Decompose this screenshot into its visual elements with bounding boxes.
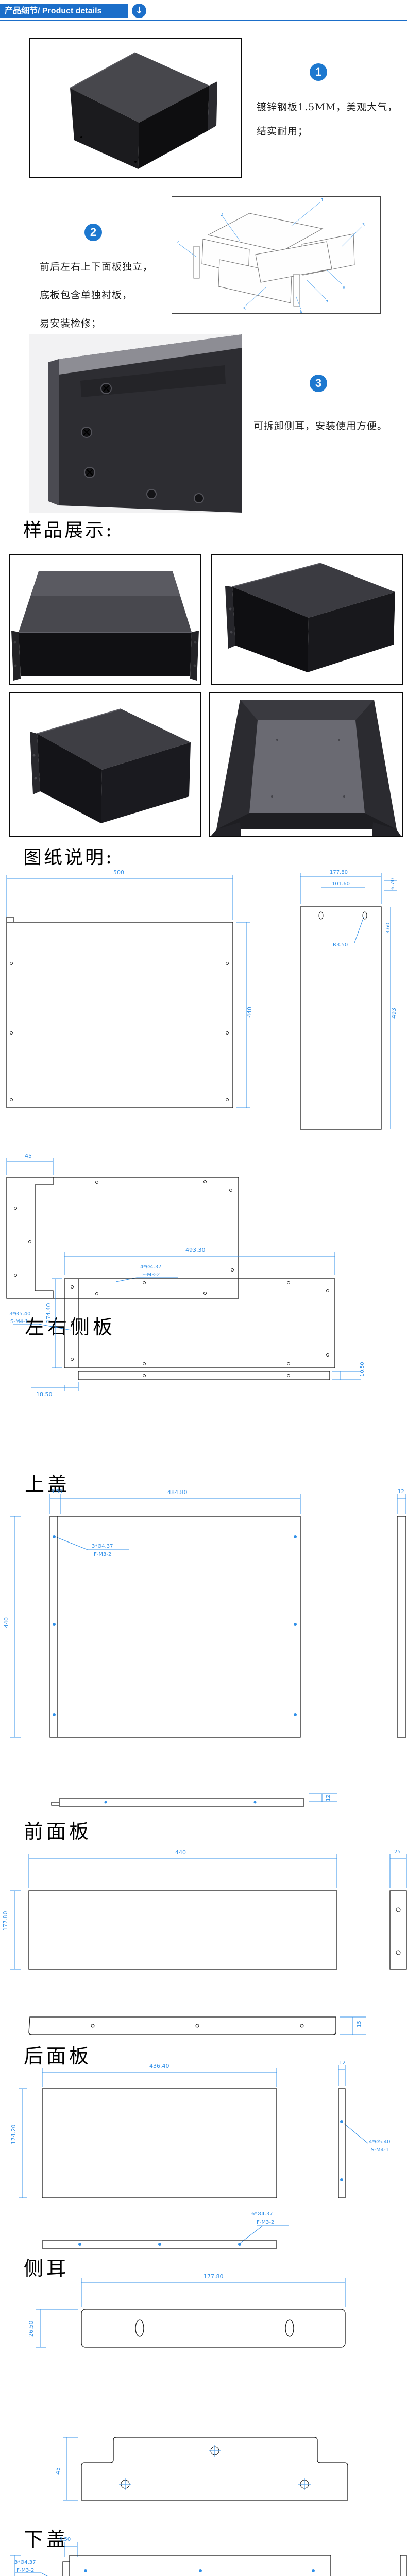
sample-photo-front-top [9,554,201,685]
dim-ear-profile-depth: 45 [55,2467,61,2475]
feature-3-line-1: 可拆卸侧耳，安装使用方便。 [253,418,387,432]
product-details-page: 产品细节/ Product details ↓ 1 镀锌钢板1.5MM，美观大气… [0,0,407,2576]
ann-rearpanel-side-holes-type: S-M4-1 [371,2147,389,2153]
callout-6: 6 [300,309,302,313]
callout-4: 4 [177,240,180,245]
header-rule [0,20,407,21]
dim-ear-hole-span: 101.60 [332,881,350,887]
dim-topcover-profile: 12 [326,1794,331,1801]
product-photo-1-art [30,39,241,177]
ann-topcover-holes-type: F-M3-2 [94,1552,111,1557]
dim-overall-width: 500 [113,869,124,876]
ann-bottomcover-corner-holes: 3*Ø4.37 [14,2559,36,2565]
ann-sidepanel-top-holes-type: F-M3-2 [142,1272,160,1278]
dim-overall-height: 440 [246,1007,253,1018]
dim-ear-width: 177.80 [330,870,348,875]
callout-3: 3 [362,223,365,227]
dim-topcover-width: 484.80 [167,1489,188,1496]
dim-bottomcover-inset: 9,50 [59,2537,71,2543]
exploded-view-diagram: 1 2 3 4 5 6 7 8 [172,196,381,314]
callout-5: 5 [243,307,246,311]
ann-sidepanel-side-holes: 3*Ø5.40 [9,1311,31,1317]
drawing-side-panel: 493.30 4*Ø4.37 F-M3-2 174.40 3*Ø5.40 S-M… [0,1247,407,1401]
down-arrow-icon: ↓ [132,4,146,18]
dim-side-flange: 45 [25,1153,32,1159]
dim-topcover-edge: 12 [398,1489,404,1495]
feature-2-line-2: 底板包含单独衬板， [40,287,132,301]
drawing-overall: 500 440 177.80 101.60 6.70 3.60 R3.50 49… [4,868,407,1133]
callout-7: 7 [326,300,328,304]
dim-frontpanel-side: 25 [394,1849,401,1855]
feature-1-badge: 1 [310,63,327,81]
callout-8: 8 [343,285,345,290]
product-photo-screw-closeup [29,334,242,513]
ann-sidepanel-side-holes-type: S-M4-1 [10,1319,28,1325]
dim-ear-height: 493 [391,1008,397,1019]
feature-2-line-3: 易安装检修； [40,316,101,330]
dim-rearpanel-width: 436.40 [149,2063,169,2070]
ann-sidepanel-top-holes: 4*Ø4.37 [140,1264,162,1270]
dim-frontpanel-channel: 15 [357,2021,362,2027]
dim-frontpanel-width: 440 [175,1849,186,1856]
dim-ear-length: 177.80 [203,2273,224,2280]
dim-frontpanel-height: 177.80 [2,1911,9,1931]
callout-2: 2 [221,212,223,217]
header-title-bar: 产品细节/ Product details [0,4,128,18]
feature-2-badge: 2 [84,224,102,241]
product-photo-angled-box [29,38,242,178]
dim-ear-radius: R3.50 [333,942,348,948]
drawing-top-cover: 9.50 484.80 12 440 3*Ø4.37 F-M3-2 12 [0,1488,407,1818]
feature-1-line-2: 结实耐用； [257,124,308,138]
sample-photo-interior [209,692,403,837]
drawing-side-ear: 177.80 26.50 45 [0,2271,407,2508]
sample-photo-angled-right [211,554,403,685]
drawing-front-panel: 440 25 177.80 15 [0,1847,407,2040]
callout-1: 1 [321,198,324,202]
ann-rearpanel-side-holes: 4*Ø5.40 [369,2139,391,2145]
feature-3-badge: 3 [310,375,327,392]
dim-sidepanel-height: 174.40 [45,1303,52,1324]
sample-photo-angled-left [9,692,201,837]
drawing-bottom-cover: 9,50 3*Ø4.37 F-M3-2 440 9*Ø5.40 BSO-3.5M… [0,2535,407,2576]
drawing-rear-panel: 436.40 12 174.20 4*Ø5.40 S-M4-1 6*Ø4.37 … [0,2060,407,2256]
feature-1-line-1: 镀锌钢板1.5MM，美观大气， [257,99,398,113]
ann-bottomcover-corner-holes-type: F-M3-2 [16,2568,34,2573]
dim-topcover-depth: 440 [3,1617,10,1628]
dim-sidepanel-length: 493.30 [185,1247,206,1253]
dim-rearpanel-height: 174.20 [10,2125,17,2145]
dim-ear-offset-1: 6.70 [390,878,396,890]
dim-ear-width2: 26.50 [28,2321,35,2337]
drawings-heading: 图纸说明: [23,842,114,869]
dim-rearpanel-side: 12 [339,2060,346,2066]
ann-topcover-holes: 3*Ø4.37 [92,1543,113,1549]
feature-2-line-1: 前后左右上下面板独立， [40,259,153,273]
label-front-panel: 前面板 [24,1816,92,1844]
ann-rearpanel-bar-holes-type: F-M3-2 [257,2219,274,2225]
ann-rearpanel-bar-holes: 6*Ø4.37 [251,2211,273,2217]
dim-sidepanel-flange: 10.50 [360,1362,365,1377]
dim-ear-offset-2: 3.60 [385,923,391,934]
samples-heading: 样品展示: [23,515,114,542]
dim-sidepanel-offset: 18.50 [36,1391,53,1398]
dim-topcover-inset: 9.50 [51,1489,62,1495]
